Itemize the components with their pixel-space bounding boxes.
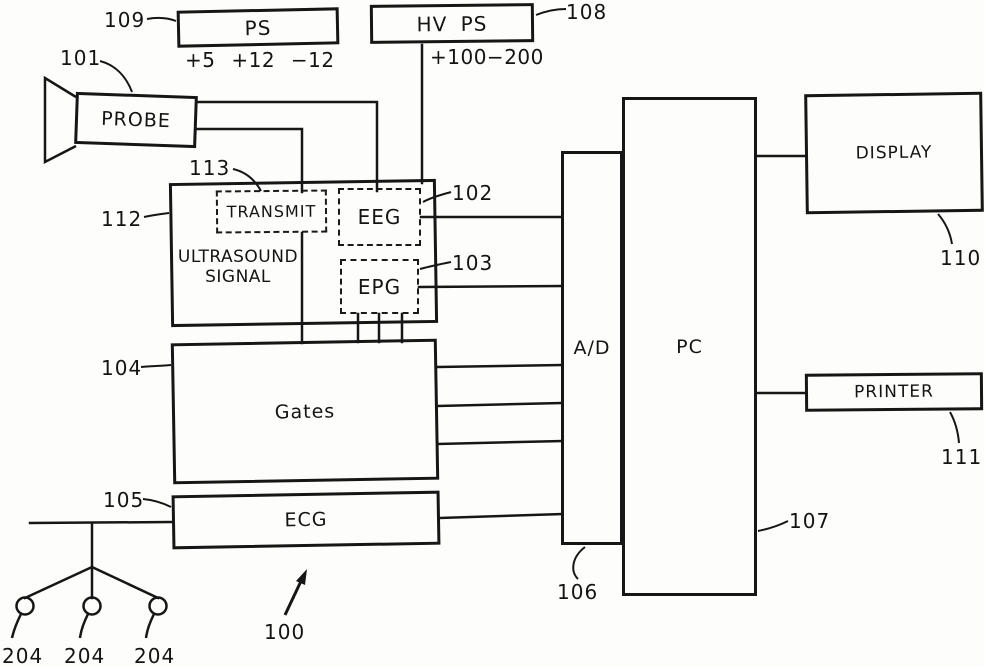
- ref-label-106: 106: [557, 580, 598, 604]
- ref-label-105: 105: [103, 488, 144, 512]
- leader-112: [144, 213, 169, 217]
- display-box: DISPLAY: [804, 92, 984, 214]
- ref-label-204-2: 204: [64, 644, 105, 667]
- leader-109: [147, 18, 176, 21]
- hv-ps-label: HV PS: [416, 11, 487, 36]
- leader-105: [143, 499, 171, 507]
- electrode-tail: [146, 614, 154, 638]
- pc-label: PC: [676, 336, 703, 358]
- probe-horn-shape: [45, 78, 76, 162]
- ref-label-103: 103: [452, 251, 493, 275]
- transmit-box: TRANSMIT: [216, 190, 327, 234]
- leader-110: [938, 214, 952, 244]
- ref-label-102: 102: [452, 181, 493, 205]
- eeg-box: EEG: [338, 188, 421, 246]
- electrode-tail: [12, 614, 21, 638]
- ref-label-110: 110: [940, 246, 981, 270]
- leader-106: [573, 547, 585, 579]
- ref-label-104: 104: [101, 356, 142, 380]
- probe-label: PROBE: [101, 108, 171, 132]
- ref-label-109: 109: [104, 8, 145, 32]
- ref-label-108: 108: [566, 0, 607, 24]
- gates-box: Gates: [171, 339, 439, 485]
- gates-to-ad-lines: [438, 365, 562, 444]
- ecg-to-ad-line: [440, 514, 562, 518]
- ps-label: PS: [244, 15, 271, 40]
- ps-voltages-label: +5 +12 −12: [185, 48, 327, 72]
- ad-converter-label: A/D: [573, 337, 610, 359]
- printer-box: PRINTER: [805, 372, 983, 412]
- leader-111: [950, 412, 959, 443]
- pc-box: PC: [622, 97, 757, 596]
- ps-box: PS: [177, 7, 340, 47]
- ref-label-107: 107: [789, 509, 830, 533]
- ecg-lead-bus: [30, 522, 172, 523]
- ecg-electrodes: [12, 598, 167, 639]
- electrode-icon: [150, 598, 167, 615]
- transmit-label: TRANSMIT: [227, 202, 317, 222]
- hv-ps-voltages-label: +100−200: [430, 45, 536, 69]
- ref-label-111: 111: [941, 445, 982, 469]
- ultrasound-signal-label: ULTRASOUND SIGNAL: [174, 247, 302, 287]
- ref-label-204-1: 204: [2, 644, 43, 667]
- electrode-icon: [17, 598, 34, 615]
- leader-104: [141, 365, 171, 367]
- epg-label: EPG: [358, 275, 401, 299]
- ref-label-101: 101: [60, 46, 101, 70]
- epg-box: EPG: [340, 259, 419, 314]
- eeg-label: EEG: [358, 205, 402, 229]
- ref-label-204-3: 204: [134, 644, 175, 667]
- system-pointer-arrow: [285, 569, 307, 615]
- electrode-tail: [80, 614, 88, 638]
- probe-box: PROBE: [74, 92, 198, 148]
- ecg-box: ECG: [172, 491, 441, 550]
- ecg-label: ECG: [284, 509, 327, 532]
- ecg-lead-branches: [25, 567, 158, 598]
- hv-ps-box: HV PS: [370, 3, 534, 44]
- electrode-icon: [84, 598, 101, 615]
- leader-108: [536, 9, 566, 15]
- ad-converter-box: A/D: [561, 151, 623, 545]
- ref-label-100: 100: [264, 620, 305, 644]
- leader-101: [100, 61, 132, 92]
- printer-label: PRINTER: [854, 382, 934, 403]
- epg-to-ad-line: [419, 286, 562, 287]
- leader-107: [758, 521, 788, 531]
- ref-label-112: 112: [101, 207, 142, 231]
- gates-label: Gates: [275, 400, 336, 423]
- patent-block-diagram: PS +5 +12 −12 HV PS +100−200 PROBE ULTRA…: [0, 0, 984, 667]
- ref-label-113: 113: [189, 156, 230, 180]
- display-label: DISPLAY: [856, 142, 933, 163]
